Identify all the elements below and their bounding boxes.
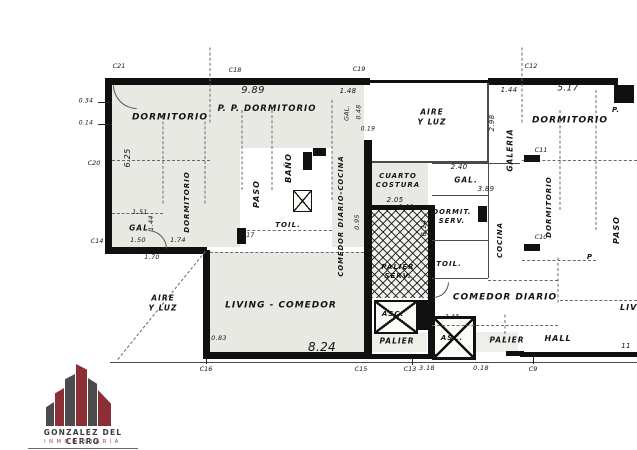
partition-dorm-w-right: [205, 117, 206, 204]
fixture-shower: [293, 190, 312, 212]
lot-bottom-line: [110, 362, 637, 363]
galeria-right-dash: [522, 48, 523, 123]
paso-bottom-dash: [560, 300, 637, 301]
label-p-2: P: [587, 253, 593, 261]
stair-right-wall: [428, 205, 435, 357]
room-palier-1: PALIER: [379, 337, 414, 346]
room-comedor-diario-cocina: COMEDOR DIARIO-COCINA: [337, 155, 345, 276]
room-palier-2: PALIER: [489, 336, 524, 345]
room-hall: HALL: [544, 334, 571, 344]
left-wall: [105, 78, 112, 254]
fixture-box-a: [313, 148, 326, 156]
marker-c11: C11: [535, 147, 548, 155]
top-wall-right: [488, 78, 618, 85]
marker-tick-c9: [533, 356, 534, 364]
room-dormitorio-w: DORMITORIO: [183, 171, 191, 232]
bottom-right-wall: [520, 352, 637, 357]
dim-0-34: 0.34: [79, 97, 94, 104]
comedor-bottom-dash: [432, 325, 558, 326]
marker-c18: C18: [229, 67, 242, 75]
center-party-wall: [364, 140, 372, 358]
comedor-right-dash: [558, 258, 559, 303]
toil-right-top-line: [432, 240, 488, 241]
floor-plan-page: { "plan": { "rooms": { "dormitorio_nw": …: [0, 0, 637, 450]
marker-c13: C13: [404, 366, 417, 374]
room-dormit-serv: DORMIT. SERV.: [432, 208, 471, 226]
partition-bano-left: [272, 110, 273, 190]
marker-c17: C17: [242, 232, 255, 240]
logo-building-icon: [46, 362, 112, 426]
agency-logo: GONZALEZ DEL CERRO INMOBILIARIA: [28, 358, 138, 446]
room-dormitorio-nw: DORMITORIO: [132, 113, 208, 124]
dim-3-18: 3.18: [419, 365, 435, 373]
dim-2-43: 2.43: [445, 313, 460, 320]
dormitorio-e-bottom-dash: [522, 260, 596, 261]
marker-c16: C16: [200, 366, 213, 374]
dormit-serv-top-line: [432, 195, 488, 196]
marker-c9: C9: [529, 366, 538, 374]
duct-block: [417, 300, 428, 330]
column-gal-right: [478, 206, 487, 222]
dim-5-17: 5.17: [557, 84, 578, 95]
courtyard-left-label: AIRE Y LUZ: [149, 293, 178, 313]
room-living-right: LIVING: [620, 303, 637, 313]
dim-11: 11: [621, 342, 631, 350]
dim-0-14: 0.14: [79, 119, 94, 126]
dim-1-50: 1.50: [130, 237, 146, 245]
top-wall-courtyard: [370, 80, 488, 83]
room-dormitorio-e: DORMITORIO: [545, 176, 553, 237]
dim-6-25: 6.25: [123, 148, 133, 167]
room-palier-serv: PALIER SERV.: [381, 263, 414, 281]
top-wall-left: [105, 78, 370, 85]
dim-6-14: 6.14: [420, 220, 428, 237]
dim-0-19: 0.19: [361, 125, 376, 132]
dim-3-89: 3.89: [478, 185, 495, 193]
room-asc-1: ASC.: [382, 310, 404, 318]
cocina-left-line: [488, 163, 489, 278]
dim-2-40: 2.40: [451, 163, 468, 171]
dim-1-48: 1.48: [340, 87, 357, 95]
dim-4-27: 4.27: [202, 289, 210, 306]
room-gal-right: GAL.: [454, 176, 478, 185]
dim-1-74: 1.74: [170, 237, 186, 245]
marker-tick-c13: [412, 358, 413, 365]
room-toil-left: TOIL.: [275, 221, 300, 229]
wall-tick-2: [98, 124, 112, 125]
marker-c20: C20: [88, 160, 101, 168]
top-right-column: [614, 85, 634, 103]
room-asc-2: ASC.: [441, 334, 463, 342]
column-c10: [524, 244, 540, 251]
room-living-comedor: LIVING - COMEDOR: [225, 301, 337, 312]
marker-c19: C19: [353, 66, 366, 74]
marker-c21: C21: [113, 63, 126, 71]
partition-toil-top: [242, 230, 332, 231]
dim-1-44c: 1.44: [399, 203, 414, 210]
living-bottom-wall: [203, 352, 371, 359]
marker-c14: C14: [91, 238, 104, 246]
comedor-top-dash: [488, 280, 558, 281]
column-gal: [122, 247, 138, 254]
room-cocina: COCINA: [496, 222, 504, 258]
room-toil-right: TOIL.: [436, 260, 461, 268]
room-gal-left: GAL: [129, 224, 149, 233]
logo-tagline: INMOBILIARIA: [28, 439, 138, 445]
room-bano: BAÑO: [284, 153, 294, 183]
room-paso-left: PASO: [252, 180, 262, 208]
room-paso-right: PASO: [612, 216, 622, 244]
column-c11: [524, 155, 540, 162]
partition-paso-left: [242, 110, 243, 190]
room-pp-dormitorio: P. P. DORMITORIO: [218, 104, 317, 114]
dim-0-83: 0.83: [211, 335, 227, 343]
threshold-hall: [506, 351, 524, 356]
room-galeria: GALERIA: [506, 128, 515, 171]
marker-c15: C15: [355, 366, 368, 374]
partition-dormitorios: [210, 48, 211, 123]
core-bottom-wall: [364, 354, 436, 359]
partition-dorm-w-left: [163, 117, 164, 204]
dim-0-48: 0.48: [355, 105, 362, 120]
dim-1-51: 1.51: [132, 209, 148, 217]
dim-8-24: 8.24: [308, 340, 336, 354]
toil-right-bottom-line: [432, 278, 488, 279]
room-cuarto-costura: CUARTO COSTURA: [376, 172, 420, 190]
dim-1-44a: 1.44: [501, 86, 518, 94]
dim-2-98: 2.98: [488, 115, 496, 132]
room-dormitorio-ne: DORMITORIO: [532, 116, 608, 127]
marker-tick-c16: [206, 356, 207, 364]
marker-c12: C12: [525, 63, 538, 71]
dim-0-95: 0.95: [354, 214, 362, 230]
dim-1-70: 1.70: [144, 254, 160, 262]
partition-cocina-strip: [332, 100, 333, 200]
marker-c10: C10: [535, 234, 548, 242]
label-p-1: P.: [612, 106, 620, 114]
wall-tick-1: [98, 102, 112, 103]
paso-right-dash: [596, 90, 597, 230]
label-gal-small: GAL.: [343, 105, 350, 121]
dim-9-89: 9.89: [241, 85, 264, 97]
dim-1-44b: 1.44: [148, 215, 156, 231]
room-comedor-diario: COMEDOR DIARIO: [453, 293, 557, 304]
dim-0-18: 0.18: [473, 365, 489, 373]
door-arc-palier: [433, 282, 449, 298]
fixture-wc: [303, 152, 312, 170]
courtyard-top-label: AIRE Y LUZ: [418, 107, 447, 127]
